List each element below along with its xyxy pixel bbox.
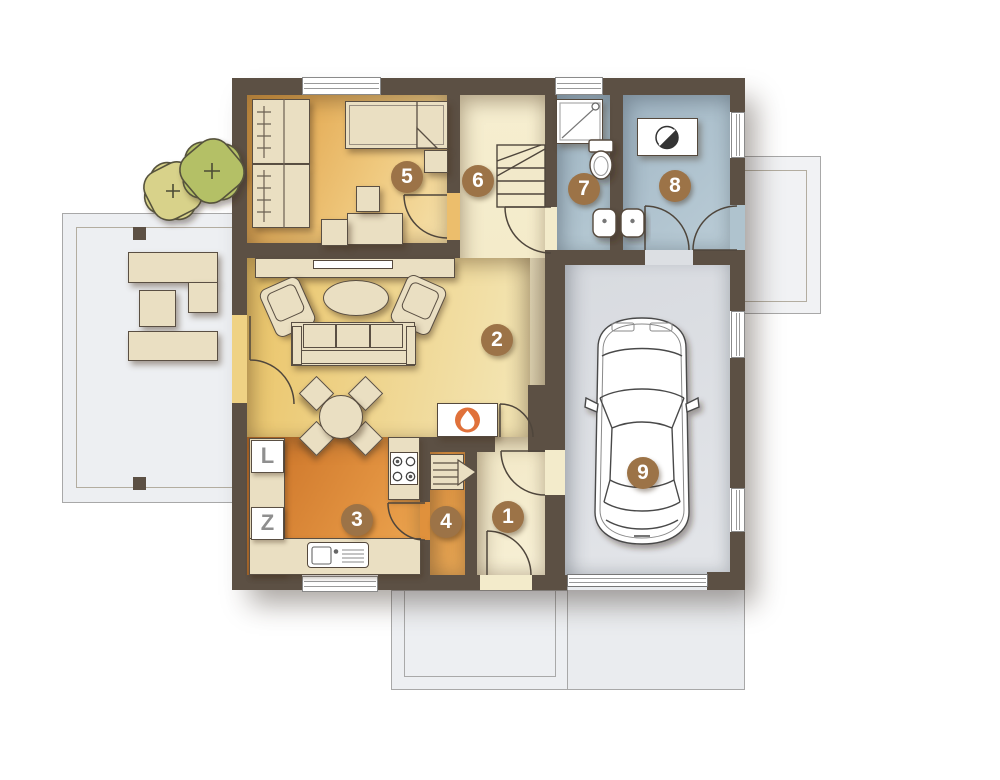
bathroom-window	[555, 77, 603, 95]
dining-table	[319, 395, 363, 439]
wall-pantry-left	[420, 452, 430, 502]
tv	[313, 260, 393, 269]
wall-fireplace	[420, 437, 495, 452]
garage-window	[731, 488, 745, 532]
desk-chair	[321, 219, 348, 246]
wall-bottom	[532, 575, 567, 590]
side-cabinet	[356, 186, 380, 212]
wall-bedroom-hall	[447, 95, 460, 193]
wardrobe	[252, 164, 310, 228]
kitchen-window	[302, 576, 378, 592]
floor-plan: L Z	[0, 0, 1000, 780]
wall-utility-garage	[693, 250, 745, 265]
sofa-arm	[406, 326, 416, 365]
terrace-post	[133, 477, 146, 490]
coffee-table	[323, 280, 389, 316]
bedroom-window	[302, 77, 381, 95]
room-badge-bedroom: 5	[391, 161, 423, 193]
stove	[390, 452, 418, 485]
room-badge-bathroom: 7	[568, 173, 600, 205]
bed	[345, 101, 448, 149]
threshold	[545, 207, 557, 253]
threshold	[447, 193, 460, 240]
wall-right	[730, 78, 745, 112]
wardrobe	[252, 99, 310, 164]
bed-inner-line	[349, 105, 444, 145]
sofa-cushion	[303, 324, 336, 348]
wall-bottom	[232, 575, 302, 590]
room-badge-kitchen: 3	[341, 504, 373, 536]
wall-bedroom-living	[247, 243, 457, 258]
threshold	[232, 315, 247, 403]
threshold	[730, 205, 745, 250]
driveway	[567, 586, 745, 690]
armchair-seat	[265, 282, 306, 323]
threshold	[480, 575, 532, 590]
wall-right	[730, 532, 745, 590]
armchair-seat	[400, 280, 441, 321]
front-walkway-inner-line	[404, 590, 556, 677]
wall-utility-garage	[557, 250, 645, 265]
appliance-marker-dishwasher: Z	[251, 507, 284, 540]
sofa	[291, 322, 415, 366]
desk	[347, 213, 403, 245]
garage-door	[567, 574, 708, 587]
wall-garage-left-upper	[545, 250, 565, 450]
nightstand	[424, 150, 448, 173]
sofa-cushion	[336, 324, 370, 348]
terrace-post	[133, 227, 146, 240]
room-badge-entry: 1	[492, 501, 524, 533]
wall-pantry-right	[465, 452, 477, 575]
fireplace	[437, 403, 498, 437]
terrace-bench	[128, 331, 218, 361]
side-patio-inner-line	[743, 170, 807, 302]
room-badge-garage: 9	[627, 457, 659, 489]
room-badge-living: 2	[481, 324, 513, 356]
wall-corridor-stub	[528, 385, 545, 452]
room-badge-hall: 6	[462, 165, 494, 197]
appliance-marker-fridge: L	[251, 440, 284, 473]
utility-window	[731, 112, 745, 158]
sofa-cushion	[370, 324, 403, 348]
wall-garage-left-lower	[545, 495, 565, 575]
shower	[556, 99, 603, 144]
terrace-sofa	[128, 252, 218, 283]
terrace-s sofa-corner	[188, 282, 218, 313]
wall-bottom	[378, 575, 480, 590]
wall-left-upper	[232, 78, 247, 315]
wall-bathroom-utility	[610, 95, 623, 253]
wall-right	[730, 358, 745, 488]
sofa-arm	[292, 326, 302, 365]
threshold	[645, 250, 693, 265]
threshold	[545, 450, 565, 495]
wall-right	[730, 158, 745, 205]
kitchen-sink-unit	[307, 542, 369, 568]
sofa-back	[301, 350, 407, 364]
wall-left-lower	[232, 403, 247, 590]
boiler-console	[637, 118, 698, 156]
room-badge-utility: 8	[659, 170, 691, 202]
room-garage-floor	[565, 250, 730, 575]
wall-pantry-left	[420, 540, 430, 575]
garage-window	[731, 311, 745, 358]
room-badge-pantry: 4	[430, 506, 462, 538]
threshold	[420, 502, 430, 540]
pantry-shelf	[430, 454, 464, 490]
terrace-table	[139, 290, 176, 327]
